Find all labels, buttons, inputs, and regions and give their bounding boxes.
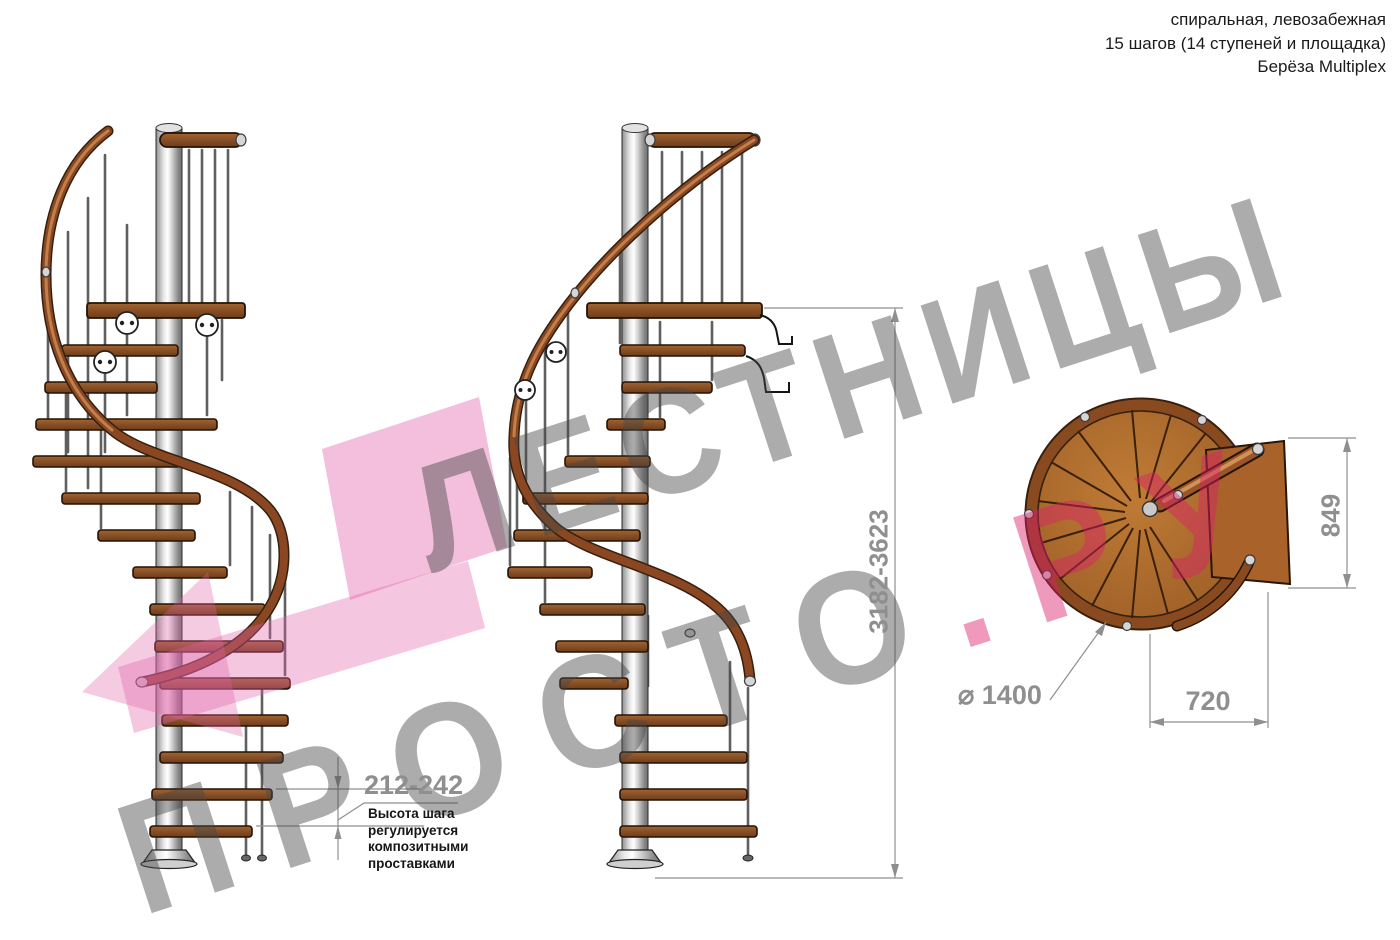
diameter-dimension: ⌀ 1400 bbox=[958, 680, 1042, 711]
note-line: Высота шага bbox=[368, 806, 468, 823]
drawing-canvas: ЛЕСТНИЦЫ ПРОСТО.РУ спиральная, левозабеж… bbox=[0, 0, 1400, 940]
diameter-value: 1400 bbox=[982, 680, 1042, 710]
tread bbox=[62, 493, 200, 504]
pole-base-plate bbox=[607, 860, 663, 869]
tread bbox=[620, 789, 747, 800]
arrowhead bbox=[1343, 574, 1351, 588]
pole-top-cap bbox=[622, 124, 648, 133]
stair-type-label: спиральная, левозабежная bbox=[1105, 8, 1386, 32]
step-height-note: Высота шага регулируется композитными пр… bbox=[368, 806, 468, 872]
baluster-foot bbox=[743, 855, 753, 861]
note-line: регулируется bbox=[368, 823, 468, 840]
centre-pole bbox=[156, 128, 182, 855]
flange-connector bbox=[196, 314, 218, 336]
handrail-end-cap bbox=[645, 134, 655, 146]
platform-handrail bbox=[160, 133, 242, 147]
arrowhead bbox=[1254, 718, 1268, 726]
pole-top-cap bbox=[156, 124, 182, 133]
platform-board bbox=[587, 303, 762, 318]
tread bbox=[36, 419, 217, 430]
title-block: спиральная, левозабежная 15 шагов (14 ст… bbox=[1105, 8, 1386, 79]
platform-depth-dimension: 849 bbox=[1316, 456, 1347, 576]
arrowhead bbox=[1343, 438, 1351, 452]
platform-width-dimension: 720 bbox=[1158, 686, 1258, 717]
baluster-top bbox=[1081, 413, 1090, 422]
tread bbox=[62, 345, 178, 356]
handrail-joint bbox=[42, 267, 50, 277]
note-line: композитными bbox=[368, 839, 468, 856]
flange-connector bbox=[116, 312, 138, 334]
note-line: проставками bbox=[368, 856, 468, 873]
arrowhead bbox=[891, 864, 899, 878]
tread bbox=[45, 382, 157, 393]
total-height-dimension: 3182-3623 bbox=[864, 487, 895, 657]
diameter-symbol: ⌀ bbox=[958, 680, 974, 710]
arrowhead bbox=[1150, 718, 1164, 726]
flange-connector bbox=[546, 342, 566, 362]
material-label: Берёза Multiplex bbox=[1105, 55, 1386, 79]
tread bbox=[620, 826, 757, 837]
step-count-label: 15 шагов (14 ступеней и площадка) bbox=[1105, 32, 1386, 56]
step-height-dimension: 212-242 bbox=[364, 770, 463, 801]
flange-connector bbox=[94, 351, 116, 373]
platform-board bbox=[87, 303, 245, 318]
tread bbox=[133, 567, 227, 578]
tread bbox=[98, 530, 195, 541]
handrail-end-cap bbox=[236, 134, 246, 146]
handrail-joint bbox=[571, 288, 579, 298]
